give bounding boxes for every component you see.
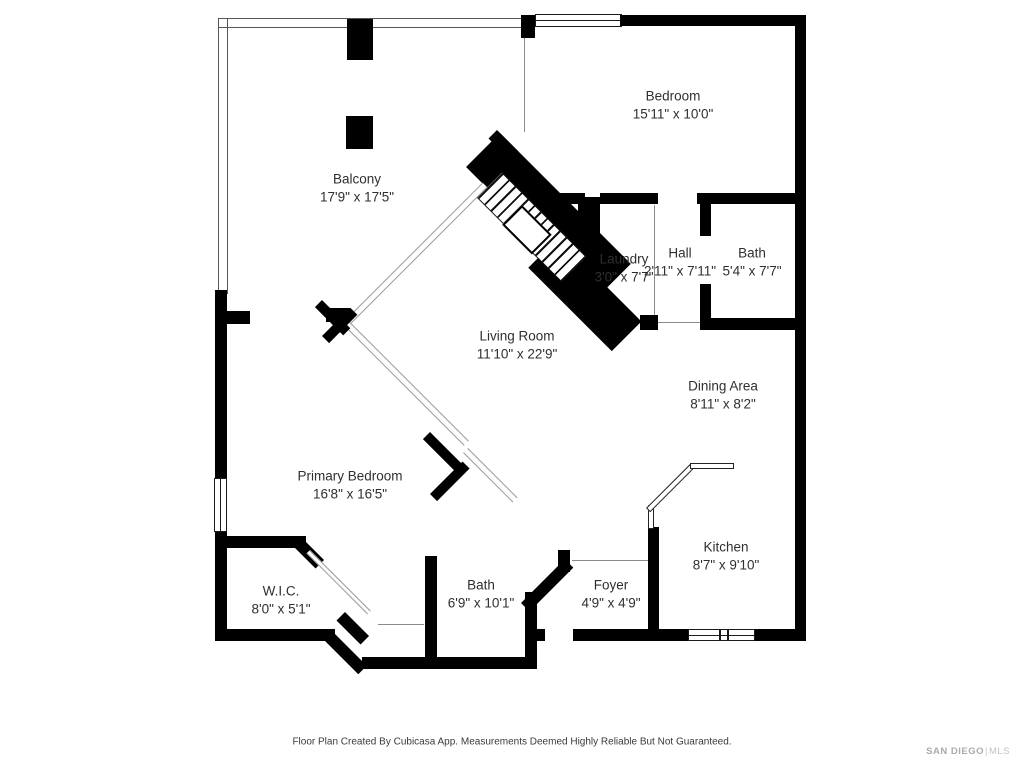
room-dims: 17'9" x 17'5" [320, 188, 394, 206]
wall-segment [700, 318, 806, 330]
room-name: Bath [738, 245, 766, 260]
wall-segment [700, 204, 711, 236]
window-mullion [719, 630, 721, 640]
door-swing-mark [430, 461, 470, 501]
room-name: Kitchen [703, 539, 748, 554]
room-label-living-room: Living Room 11'10" x 22'9" [477, 327, 558, 362]
wall-segment [697, 193, 806, 204]
wall-segment [362, 657, 432, 669]
room-label-kitchen: Kitchen 8'7" x 9'10" [693, 538, 760, 573]
mls-watermark: SAN DIEGO|MLS [926, 746, 1010, 757]
room-name: Bath [467, 577, 495, 592]
room-dims: 4'9" x 4'9" [581, 594, 640, 612]
kitchen-counter [690, 463, 734, 469]
wall-segment [573, 629, 688, 641]
wall-segment [425, 556, 437, 669]
closet-slider-glass [306, 550, 370, 614]
room-name: Foyer [594, 577, 629, 592]
hall-opening-line [658, 322, 700, 323]
room-label-hall: Hall 2'11" x 7'11" [644, 244, 716, 279]
room-label-balcony: Balcony 17'9" x 17'5" [320, 170, 394, 205]
wall-segment [620, 15, 806, 26]
room-dims: 8'0" x 5'1" [251, 600, 310, 618]
room-name: Dining Area [688, 378, 758, 393]
wall-segment [537, 629, 545, 641]
room-label-dining-area: Dining Area 8'11" x 8'2" [688, 377, 758, 412]
room-label-wic: W.I.C. 8'0" x 5'1" [251, 582, 310, 617]
floor-plan-canvas: Bedroom 15'11" x 10'0" Balcony 17'9" x 1… [0, 0, 1024, 768]
balcony-column [347, 19, 373, 60]
wall-segment [755, 629, 806, 641]
watermark-suffix: MLS [989, 746, 1010, 757]
foyer-opening-line [572, 560, 648, 561]
room-name: Living Room [479, 328, 554, 343]
room-name: Bedroom [646, 88, 701, 103]
window-symbol [688, 629, 755, 641]
room-divider-glass [463, 448, 517, 502]
room-dims: 8'11" x 8'2" [688, 395, 758, 413]
room-dims: 8'7" x 9'10" [693, 556, 760, 574]
wall-segment [425, 657, 537, 669]
room-dims: 16'8" x 16'5" [297, 485, 402, 503]
door-opening-line [378, 624, 424, 625]
balcony-rail-left-inner [227, 18, 228, 294]
room-label-foyer: Foyer 4'9" x 4'9" [581, 576, 640, 611]
room-name: Primary Bedroom [297, 468, 402, 483]
room-name: Hall [668, 245, 691, 260]
window-symbol [214, 478, 227, 532]
room-label-bedroom: Bedroom 15'11" x 10'0" [633, 87, 714, 122]
room-dims: 6'9" x 10'1" [448, 594, 515, 612]
room-dims: 11'10" x 22'9" [477, 345, 558, 363]
wall-segment [600, 193, 658, 204]
wall-segment [215, 311, 250, 324]
kitchen-counter [646, 464, 694, 512]
balcony-rail-right [524, 27, 525, 132]
balcony-column [346, 116, 373, 149]
wall-segment [215, 532, 227, 641]
room-dims: 15'11" x 10'0" [633, 105, 714, 123]
room-name: Balcony [333, 171, 381, 186]
window-mullion [727, 630, 729, 640]
room-name: W.I.C. [263, 583, 300, 598]
wall-segment [648, 527, 659, 629]
room-divider-glass [345, 322, 469, 446]
wall-segment [521, 15, 535, 38]
room-label-bath-lower: Bath 6'9" x 10'1" [448, 576, 515, 611]
wall-segment [215, 629, 335, 641]
room-dims: 2'11" x 7'11" [644, 262, 716, 280]
watermark-brand: SAN DIEGO [926, 746, 984, 757]
wall-segment [558, 550, 570, 572]
balcony-rail-left-outer [218, 18, 219, 294]
room-dims: 5'4" x 7'7" [722, 262, 781, 280]
room-name: Laundry [600, 251, 649, 266]
window-symbol [535, 14, 622, 27]
room-label-primary-bedroom: Primary Bedroom 16'8" x 16'5" [297, 467, 402, 502]
wall-segment [640, 315, 658, 330]
room-label-bath-upper: Bath 5'4" x 7'7" [722, 244, 781, 279]
footer-disclaimer: Floor Plan Created By Cubicasa App. Meas… [292, 737, 731, 748]
